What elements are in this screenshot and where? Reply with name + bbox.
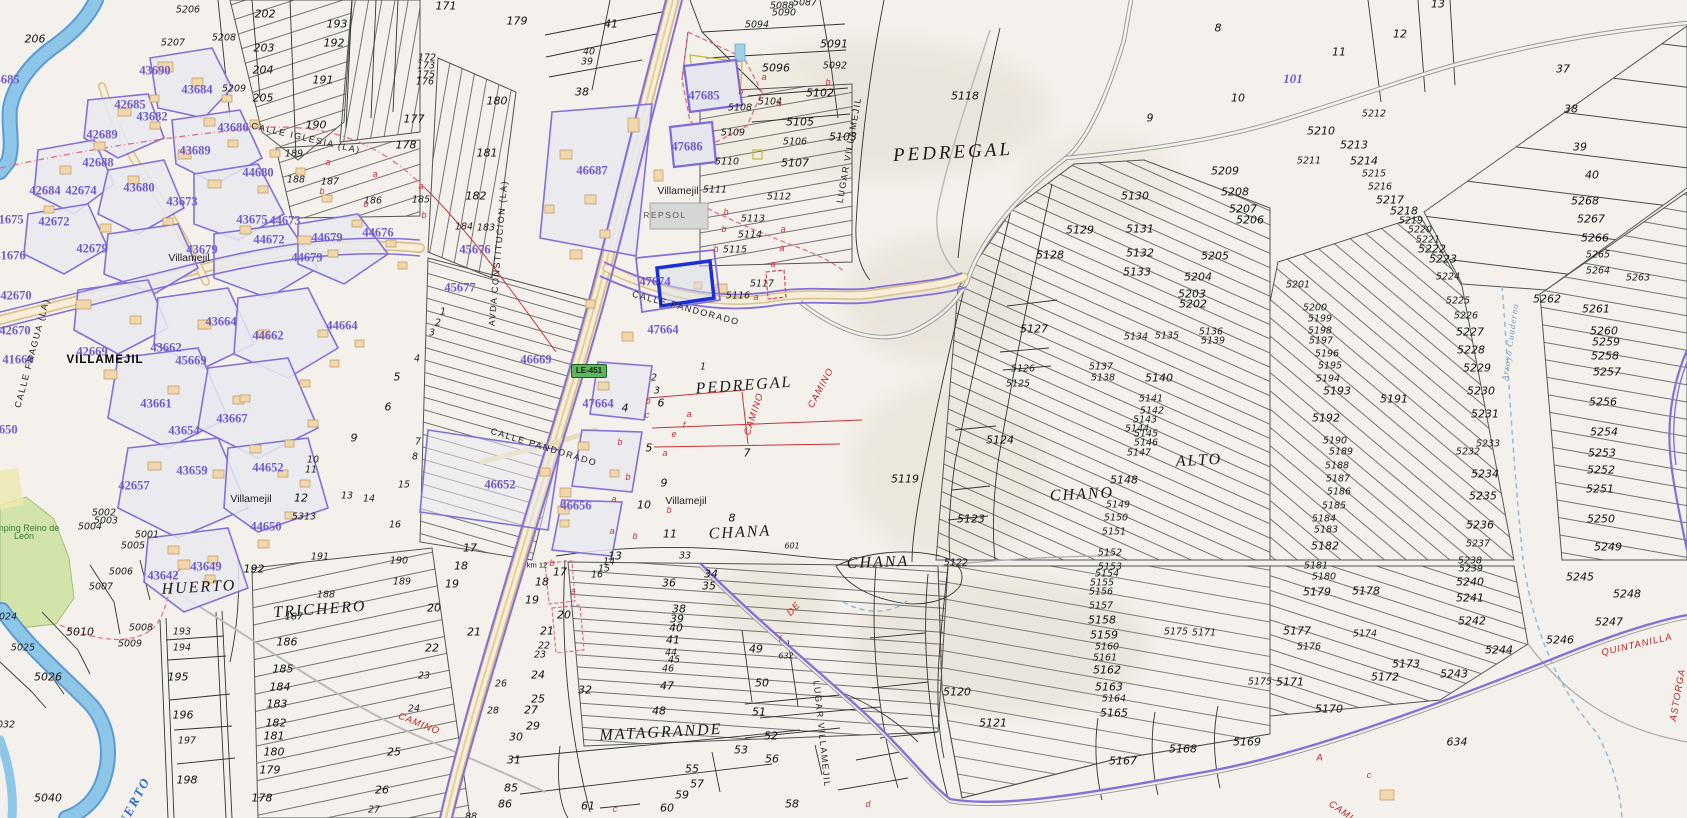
map-label: 88	[465, 812, 477, 818]
map-label: 5088	[770, 1, 794, 12]
map-label: 5004	[78, 522, 102, 533]
map-label: 9	[351, 432, 358, 445]
map-label: 5267	[1577, 213, 1605, 226]
map-label: 4	[414, 354, 420, 365]
map-label: 5149	[1106, 500, 1130, 511]
map-label: 5102	[806, 87, 834, 100]
map-label: 8	[412, 452, 418, 463]
map-label: 25	[531, 693, 545, 706]
map-label: 5136	[1199, 327, 1223, 338]
map-label: a	[686, 409, 691, 419]
map-label: 5195	[1318, 361, 1342, 372]
map-label: 5	[646, 442, 653, 455]
map-label: 24	[531, 669, 545, 682]
map-label: 5231	[1471, 408, 1499, 421]
map-label: 5156	[1089, 587, 1113, 598]
map-label: 44662	[252, 329, 283, 344]
map-label: 5208	[1221, 186, 1249, 199]
map-label: VILLAMEJIL	[66, 354, 143, 366]
map-label: 5001	[135, 530, 159, 541]
map-label: 5006	[109, 567, 133, 578]
map-label: 20	[557, 609, 571, 622]
map-label: 182	[466, 190, 487, 203]
map-label: 5146	[1134, 438, 1158, 449]
map-label: a	[770, 259, 775, 269]
map-label: 86	[498, 798, 512, 811]
map-label: 5103	[829, 131, 857, 144]
map-label: 40	[669, 622, 683, 635]
map-label: 51	[752, 706, 766, 719]
map-label: 46656	[560, 499, 591, 514]
map-label: 5106	[783, 137, 807, 148]
map-label: 5040	[34, 792, 62, 805]
map-label: 20	[427, 602, 441, 615]
map-label: CAMINO	[742, 391, 766, 436]
map-label: a	[779, 243, 784, 253]
map-label: 5200	[1303, 303, 1327, 314]
map-label: 5026	[34, 671, 62, 684]
map-label: b	[319, 186, 324, 196]
map-label: 187	[285, 612, 303, 623]
map-label: 5191	[1380, 393, 1408, 406]
map-label: 17	[553, 566, 567, 579]
map-label: 5124	[986, 434, 1014, 447]
map-label: 5127	[1020, 323, 1048, 336]
map-label: CAMINO	[806, 366, 836, 410]
map-label: 5090	[772, 8, 796, 19]
map-label: 5163	[1095, 681, 1123, 694]
map-label: 5123	[957, 513, 985, 526]
map-label: 9	[1147, 112, 1154, 125]
map-label: 43664	[205, 315, 236, 330]
map-label: 180	[264, 746, 285, 759]
map-label: Villamejil	[657, 185, 698, 197]
map-label: 197	[178, 736, 196, 747]
map-label: b	[738, 86, 743, 96]
map-label: 2	[651, 373, 657, 384]
map-label: 13	[608, 550, 622, 563]
map-label: 5183	[1314, 525, 1338, 536]
map-label: 56	[765, 753, 779, 766]
map-label: 5092	[823, 61, 847, 72]
map-label: 26	[375, 784, 389, 797]
map-label: PEDREGAL	[695, 374, 793, 399]
map-label: 39	[670, 613, 684, 626]
map-label: 47664	[647, 323, 678, 338]
map-label: 5224	[1436, 272, 1460, 283]
map-label: 5190	[1323, 436, 1347, 447]
map-label: 28	[487, 706, 499, 717]
map-label: 23	[534, 650, 546, 661]
map-label: 5249	[1594, 541, 1622, 554]
map-label: REPSOL	[643, 210, 687, 220]
map-label: 5115	[723, 245, 747, 256]
map-label: 195	[168, 671, 189, 684]
map-label: b	[363, 199, 368, 209]
map-label: 194	[173, 643, 191, 654]
map-label: 204	[253, 64, 274, 77]
map-label: 36	[662, 577, 676, 590]
map-label: 7	[415, 437, 421, 448]
map-label: 46652	[484, 478, 515, 493]
map-label: 44676	[362, 226, 393, 241]
map-label: Arroyo Cuaderno	[1500, 302, 1521, 381]
map-label: 5160	[1095, 642, 1119, 653]
map-label: 5189	[1329, 447, 1353, 458]
map-labels-layer: 2065206520752082022032042051931921911905…	[0, 0, 1687, 818]
map-label: 43667	[216, 412, 247, 427]
map-label: 43689	[179, 144, 210, 159]
map-label: 634	[1447, 736, 1468, 749]
map-label: 5227	[1456, 326, 1484, 339]
map-label: 5113	[741, 214, 765, 225]
map-label: 5201	[1286, 280, 1310, 291]
map-label: b	[421, 210, 426, 220]
map-label: 5230	[1467, 385, 1495, 398]
map-label: 1	[700, 362, 706, 373]
map-label: a	[776, 98, 781, 108]
map-label: 5242	[1458, 615, 1486, 628]
map-label: 21	[467, 626, 481, 639]
map-label: b	[625, 472, 630, 482]
map-label: 5125	[1006, 379, 1030, 390]
map-label: 5226	[1454, 311, 1478, 322]
map-label: 5186	[1327, 487, 1351, 498]
map-label: Villamejil	[665, 495, 706, 507]
map-label: 42674	[65, 184, 96, 199]
map-label: 5154	[1095, 569, 1119, 580]
map-label: 15	[398, 480, 410, 491]
map-label: 5205	[1201, 250, 1229, 263]
map-label: 5259	[1592, 336, 1620, 349]
map-label: 5003	[94, 516, 118, 527]
map-label: 5248	[1613, 588, 1641, 601]
map-label: 5138	[1091, 373, 1115, 384]
map-label: 5151	[1102, 527, 1126, 538]
map-label: 190	[306, 119, 327, 132]
map-label: 192	[244, 563, 265, 576]
map-label: 5202	[1179, 298, 1207, 311]
map-label: 10	[637, 499, 651, 512]
map-label: 5162	[1093, 664, 1121, 677]
map-label: 58	[785, 798, 799, 811]
map-label: 5232	[1456, 447, 1480, 458]
map-label: 41	[666, 634, 680, 647]
map-label: 5215	[1362, 169, 1386, 180]
map-label: TUERTO	[110, 774, 154, 818]
map-label: 44679	[291, 251, 322, 266]
map-label: 5266	[1581, 232, 1609, 245]
map-label: 5250	[1587, 513, 1615, 526]
map-label: 38	[1564, 103, 1578, 116]
map-label: 186	[277, 636, 298, 649]
map-label: 57	[690, 778, 704, 791]
map-label: 5184	[1312, 514, 1336, 525]
map-label: 5094	[745, 20, 769, 31]
map-label: b	[825, 77, 830, 87]
map-label: 5129	[1066, 224, 1094, 237]
map-label: 5212	[1362, 109, 1386, 120]
map-label: 177	[404, 113, 425, 126]
map-label: 5234	[1471, 468, 1499, 481]
map-label: 5112	[767, 192, 791, 203]
map-label: e	[671, 429, 676, 439]
map-label: 5213	[1340, 139, 1368, 152]
map-label: 6	[658, 397, 665, 410]
map-label: 33	[679, 551, 691, 562]
map-label: 43654	[168, 424, 199, 439]
map-label: 53	[734, 744, 748, 757]
map-label: 5181	[1304, 561, 1328, 572]
map-label: 5188	[1325, 461, 1349, 472]
map-label: TRICHERO	[273, 598, 367, 622]
map-label: 5141	[1139, 394, 1163, 405]
map-label: 5164	[1102, 694, 1126, 705]
map-label: 50	[755, 677, 769, 690]
map-label: 5173	[1392, 658, 1420, 671]
map-label: 5135	[1155, 331, 1179, 342]
map-label: 27	[368, 805, 380, 816]
map-label: 5116	[726, 291, 750, 302]
map-label: 43649	[190, 560, 221, 575]
map-label: Villamejil	[168, 252, 209, 264]
map-label: 18	[535, 576, 549, 589]
map-label: 11	[663, 528, 677, 541]
map-label: 5216	[1368, 182, 1392, 193]
map-label: 5119	[891, 473, 919, 486]
map-label: 5199	[1308, 314, 1332, 325]
map-label: 5002	[92, 508, 116, 519]
map-label: 43642	[147, 569, 178, 584]
map-label: 5010	[66, 626, 94, 639]
map-label: 5204	[1184, 271, 1212, 284]
map-label: CAMINO	[397, 711, 442, 738]
map-label: a	[418, 181, 423, 191]
map-label: 43682	[136, 110, 167, 125]
map-label: 13	[341, 491, 353, 502]
map-label: 5265	[1586, 250, 1610, 261]
map-label: f	[779, 634, 782, 644]
map-label: 5236	[1466, 519, 1494, 532]
map-label: 5175	[1164, 627, 1188, 638]
map-label: 101	[1283, 71, 1303, 87]
map-label: 186	[364, 196, 382, 207]
map-label: 176	[416, 77, 434, 88]
map-label: 5222	[1418, 243, 1446, 256]
map-label: 41	[604, 18, 618, 31]
map-label: 42688	[82, 156, 113, 171]
map-label: 5253	[1588, 447, 1616, 460]
map-label: 60	[660, 802, 674, 815]
map-label: 5157	[1089, 601, 1113, 612]
map-label: b	[549, 558, 554, 568]
map-label: 5206	[176, 5, 200, 16]
map-label: 43659	[176, 464, 207, 479]
map-label: CALLE FRAGUA (LA)	[13, 297, 52, 409]
map-label: f	[683, 420, 686, 430]
map-label: 1	[440, 307, 446, 318]
map-label: 55	[685, 763, 699, 776]
map-label: 14	[363, 494, 375, 505]
map-label: 179	[507, 15, 528, 28]
map-label: 5169	[1233, 736, 1261, 749]
map-label: 43679	[186, 243, 217, 258]
map-label: a	[662, 448, 667, 458]
map-label: MATAGRANDE	[599, 721, 723, 745]
map-label: 13	[1431, 0, 1445, 11]
map-label: 5235	[1469, 490, 1497, 503]
map-label: 22	[425, 642, 439, 655]
map-label: a	[761, 72, 766, 82]
map-label: DE	[785, 600, 803, 619]
map-label: 43686	[217, 121, 248, 136]
map-label: 41669	[2, 353, 33, 368]
map-label: 61	[581, 800, 595, 813]
map-label: 37	[1556, 63, 1570, 76]
map-label: 5126	[1011, 364, 1035, 375]
map-label: 5107	[781, 157, 809, 170]
map-label: 44	[665, 648, 677, 659]
map-label: 203	[254, 42, 275, 55]
map-label: 180	[487, 95, 508, 108]
map-label: 5218	[1390, 205, 1418, 218]
map-label: 5133	[1123, 266, 1151, 279]
map-label: 5165	[1100, 707, 1128, 720]
map-label: León	[14, 531, 34, 541]
map-label: 42670	[0, 324, 31, 339]
map-label: 5120	[943, 686, 971, 699]
map-label: 5167	[1109, 755, 1137, 768]
map-label: 41675	[0, 213, 24, 228]
map-label: 5209	[222, 84, 246, 95]
map-label: 5143	[1133, 415, 1157, 426]
map-label: 5152	[1098, 548, 1122, 559]
map-label: 5208	[212, 33, 236, 44]
map-label: 192	[324, 37, 345, 50]
map-label: 5128	[1036, 249, 1064, 262]
map-label: 27	[524, 704, 538, 717]
cadastral-map-canvas[interactable]: 2065206520752082022032042051931921911905…	[0, 0, 1687, 818]
map-label: 43675	[236, 213, 267, 228]
map-label: 44664	[326, 319, 357, 334]
map-label: 5161	[1093, 653, 1117, 664]
map-label: 5246	[1546, 634, 1574, 647]
map-label: a	[611, 494, 616, 504]
map-label: 8	[729, 512, 736, 525]
map-label: 182	[266, 717, 287, 730]
map-label: 5118	[951, 90, 979, 103]
map-label: a	[609, 526, 614, 536]
map-label: 8	[1215, 22, 1222, 35]
map-label: 38	[672, 603, 686, 616]
map-label: PEDREGAL	[892, 139, 1013, 167]
map-label: 5009	[118, 639, 142, 650]
map-label: 5256	[1589, 396, 1617, 409]
map-label: 5122	[944, 558, 968, 569]
map-label: 4	[622, 402, 629, 415]
map-label: 5117	[750, 279, 774, 290]
map-label: 44672	[253, 233, 284, 248]
map-label: km 12	[527, 561, 547, 570]
map-label: 5245	[1566, 571, 1594, 584]
map-label: 193	[173, 627, 191, 638]
map-label: 5104	[758, 97, 782, 108]
map-label: 5187	[1326, 474, 1350, 485]
map-label: 21	[540, 625, 554, 638]
map-label: 5182	[1311, 540, 1339, 553]
map-label: 5139	[1201, 336, 1225, 347]
map-label: 193	[327, 18, 348, 31]
map-label: 5130	[1121, 190, 1149, 203]
map-label: 31	[507, 754, 521, 767]
map-label: 5177	[1283, 625, 1311, 638]
map-label: 5172	[1371, 671, 1399, 684]
map-label: 206	[25, 33, 46, 46]
map-label: 5223	[1429, 253, 1457, 266]
map-label: 5210	[1307, 125, 1335, 138]
map-label: 43690	[139, 64, 170, 79]
map-label: 5313	[292, 512, 316, 523]
map-label: 59	[675, 789, 689, 802]
map-label: 5142	[1140, 406, 1164, 417]
map-label: 7	[744, 447, 751, 460]
map-label: b	[632, 531, 637, 541]
map-label: b	[721, 224, 726, 234]
map-label: 5264	[1586, 266, 1610, 277]
map-label: 15	[598, 564, 610, 575]
map-label: 179	[260, 764, 281, 777]
map-label: 5032	[0, 720, 15, 731]
map-label: 198	[177, 774, 198, 787]
map-label: 5	[394, 371, 401, 384]
map-label: 10	[307, 455, 319, 466]
map-label: 49	[749, 643, 763, 656]
map-label: 5134	[1124, 332, 1148, 343]
map-label: 5193	[1323, 385, 1351, 398]
map-label: CALLE PANDORADO	[490, 426, 599, 468]
map-label: 5228	[1457, 344, 1485, 357]
map-label: c	[613, 804, 618, 814]
map-label: c	[1367, 770, 1372, 780]
map-label: 19	[525, 594, 539, 607]
map-label: 5203	[1178, 288, 1206, 301]
map-label: 9	[661, 477, 668, 490]
map-label: 5214	[1350, 155, 1378, 168]
map-label: 5233	[1476, 439, 1500, 450]
map-label: 183	[477, 223, 495, 234]
map-label: 40	[583, 47, 595, 58]
map-label: 5153	[1098, 562, 1122, 573]
map-label: a	[372, 169, 377, 179]
map-label: 5220	[1408, 225, 1432, 236]
map-label: 42684	[29, 184, 60, 199]
map-label: 172	[418, 53, 436, 64]
map-label: CHANA	[846, 553, 909, 573]
map-label: 5185	[1322, 501, 1346, 512]
map-label: 5243	[1440, 668, 1468, 681]
map-label: 46	[662, 664, 674, 675]
map-label: a	[780, 224, 785, 234]
map-label: 5197	[1309, 336, 1333, 347]
map-label: CHANO	[1049, 484, 1114, 505]
map-label: 5111	[703, 185, 727, 196]
map-label: 5229	[1463, 362, 1491, 375]
map-label: 5114	[738, 230, 762, 241]
map-label: d	[865, 799, 870, 809]
map-label: 5241	[1456, 592, 1484, 605]
map-label: 5263	[1626, 273, 1650, 284]
map-label: 32	[578, 684, 592, 697]
